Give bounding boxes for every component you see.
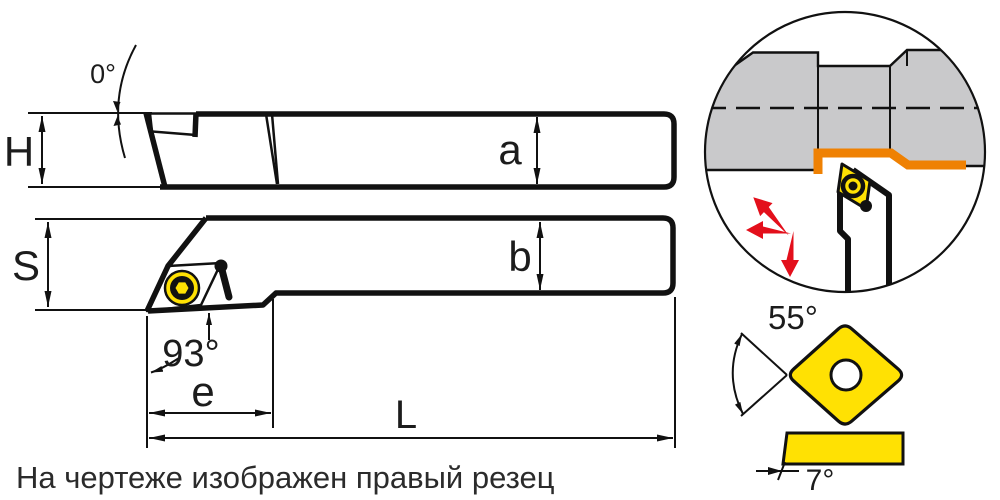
plan-view: S b 93° e L <box>12 218 675 448</box>
edge-extension-1 <box>741 375 787 416</box>
dim-H-label: H <box>4 128 34 175</box>
dim-L: L <box>149 297 675 448</box>
point-angle-label: 55° <box>768 299 818 336</box>
clearance-angle-label: 7° <box>806 464 835 497</box>
rake-angle-arc <box>118 45 136 158</box>
rake-angle-label: 0° <box>90 59 116 89</box>
rake-arrow-upper <box>113 101 121 111</box>
clamp-lobe <box>215 260 228 273</box>
insert-detail: 55° 7° <box>733 299 903 497</box>
insert-hole <box>831 360 861 390</box>
tool-drawing: 0° H a S <box>0 0 1000 500</box>
rake-arrow-lower <box>114 116 122 126</box>
insert-pocket-edge <box>195 113 196 137</box>
dim-S: S <box>12 222 48 307</box>
drawing-svg: 0° H a S <box>0 0 1000 500</box>
dim-a: a <box>498 117 537 184</box>
detail-tool <box>838 164 889 296</box>
entering-angle-annotation: 93° <box>151 313 220 375</box>
head-front-edge <box>146 113 165 187</box>
feed-arrow-down <box>781 231 799 277</box>
dim-a-label: a <box>498 126 522 173</box>
dim-L-label: L <box>395 393 417 437</box>
machining-detail <box>680 12 992 296</box>
insert-screw <box>165 271 199 305</box>
insert-side <box>150 114 197 136</box>
feed-direction-arrows <box>746 191 799 277</box>
edge-extension-2 <box>741 333 787 375</box>
detail-screw-center <box>849 182 858 191</box>
dim-b: b <box>508 222 540 290</box>
dim-e-label: e <box>191 368 214 415</box>
clearance-angle-annotation: 7° <box>756 462 834 497</box>
dim-b-label: b <box>508 233 531 280</box>
machining-detail-content <box>680 50 992 296</box>
rake-angle-annotation: 0° <box>90 45 136 158</box>
point-angle-arc <box>733 334 743 414</box>
side-view: 0° H a <box>4 45 674 187</box>
insert-clamp <box>215 260 230 298</box>
dim-H: H <box>4 116 42 184</box>
dim-S-label: S <box>12 242 40 289</box>
insert-side-profile <box>783 433 903 464</box>
shank-outline <box>160 114 674 187</box>
detail-clamp-lobe <box>860 200 872 212</box>
drawing-note: На чертеже изображен правый резец <box>16 460 555 495</box>
